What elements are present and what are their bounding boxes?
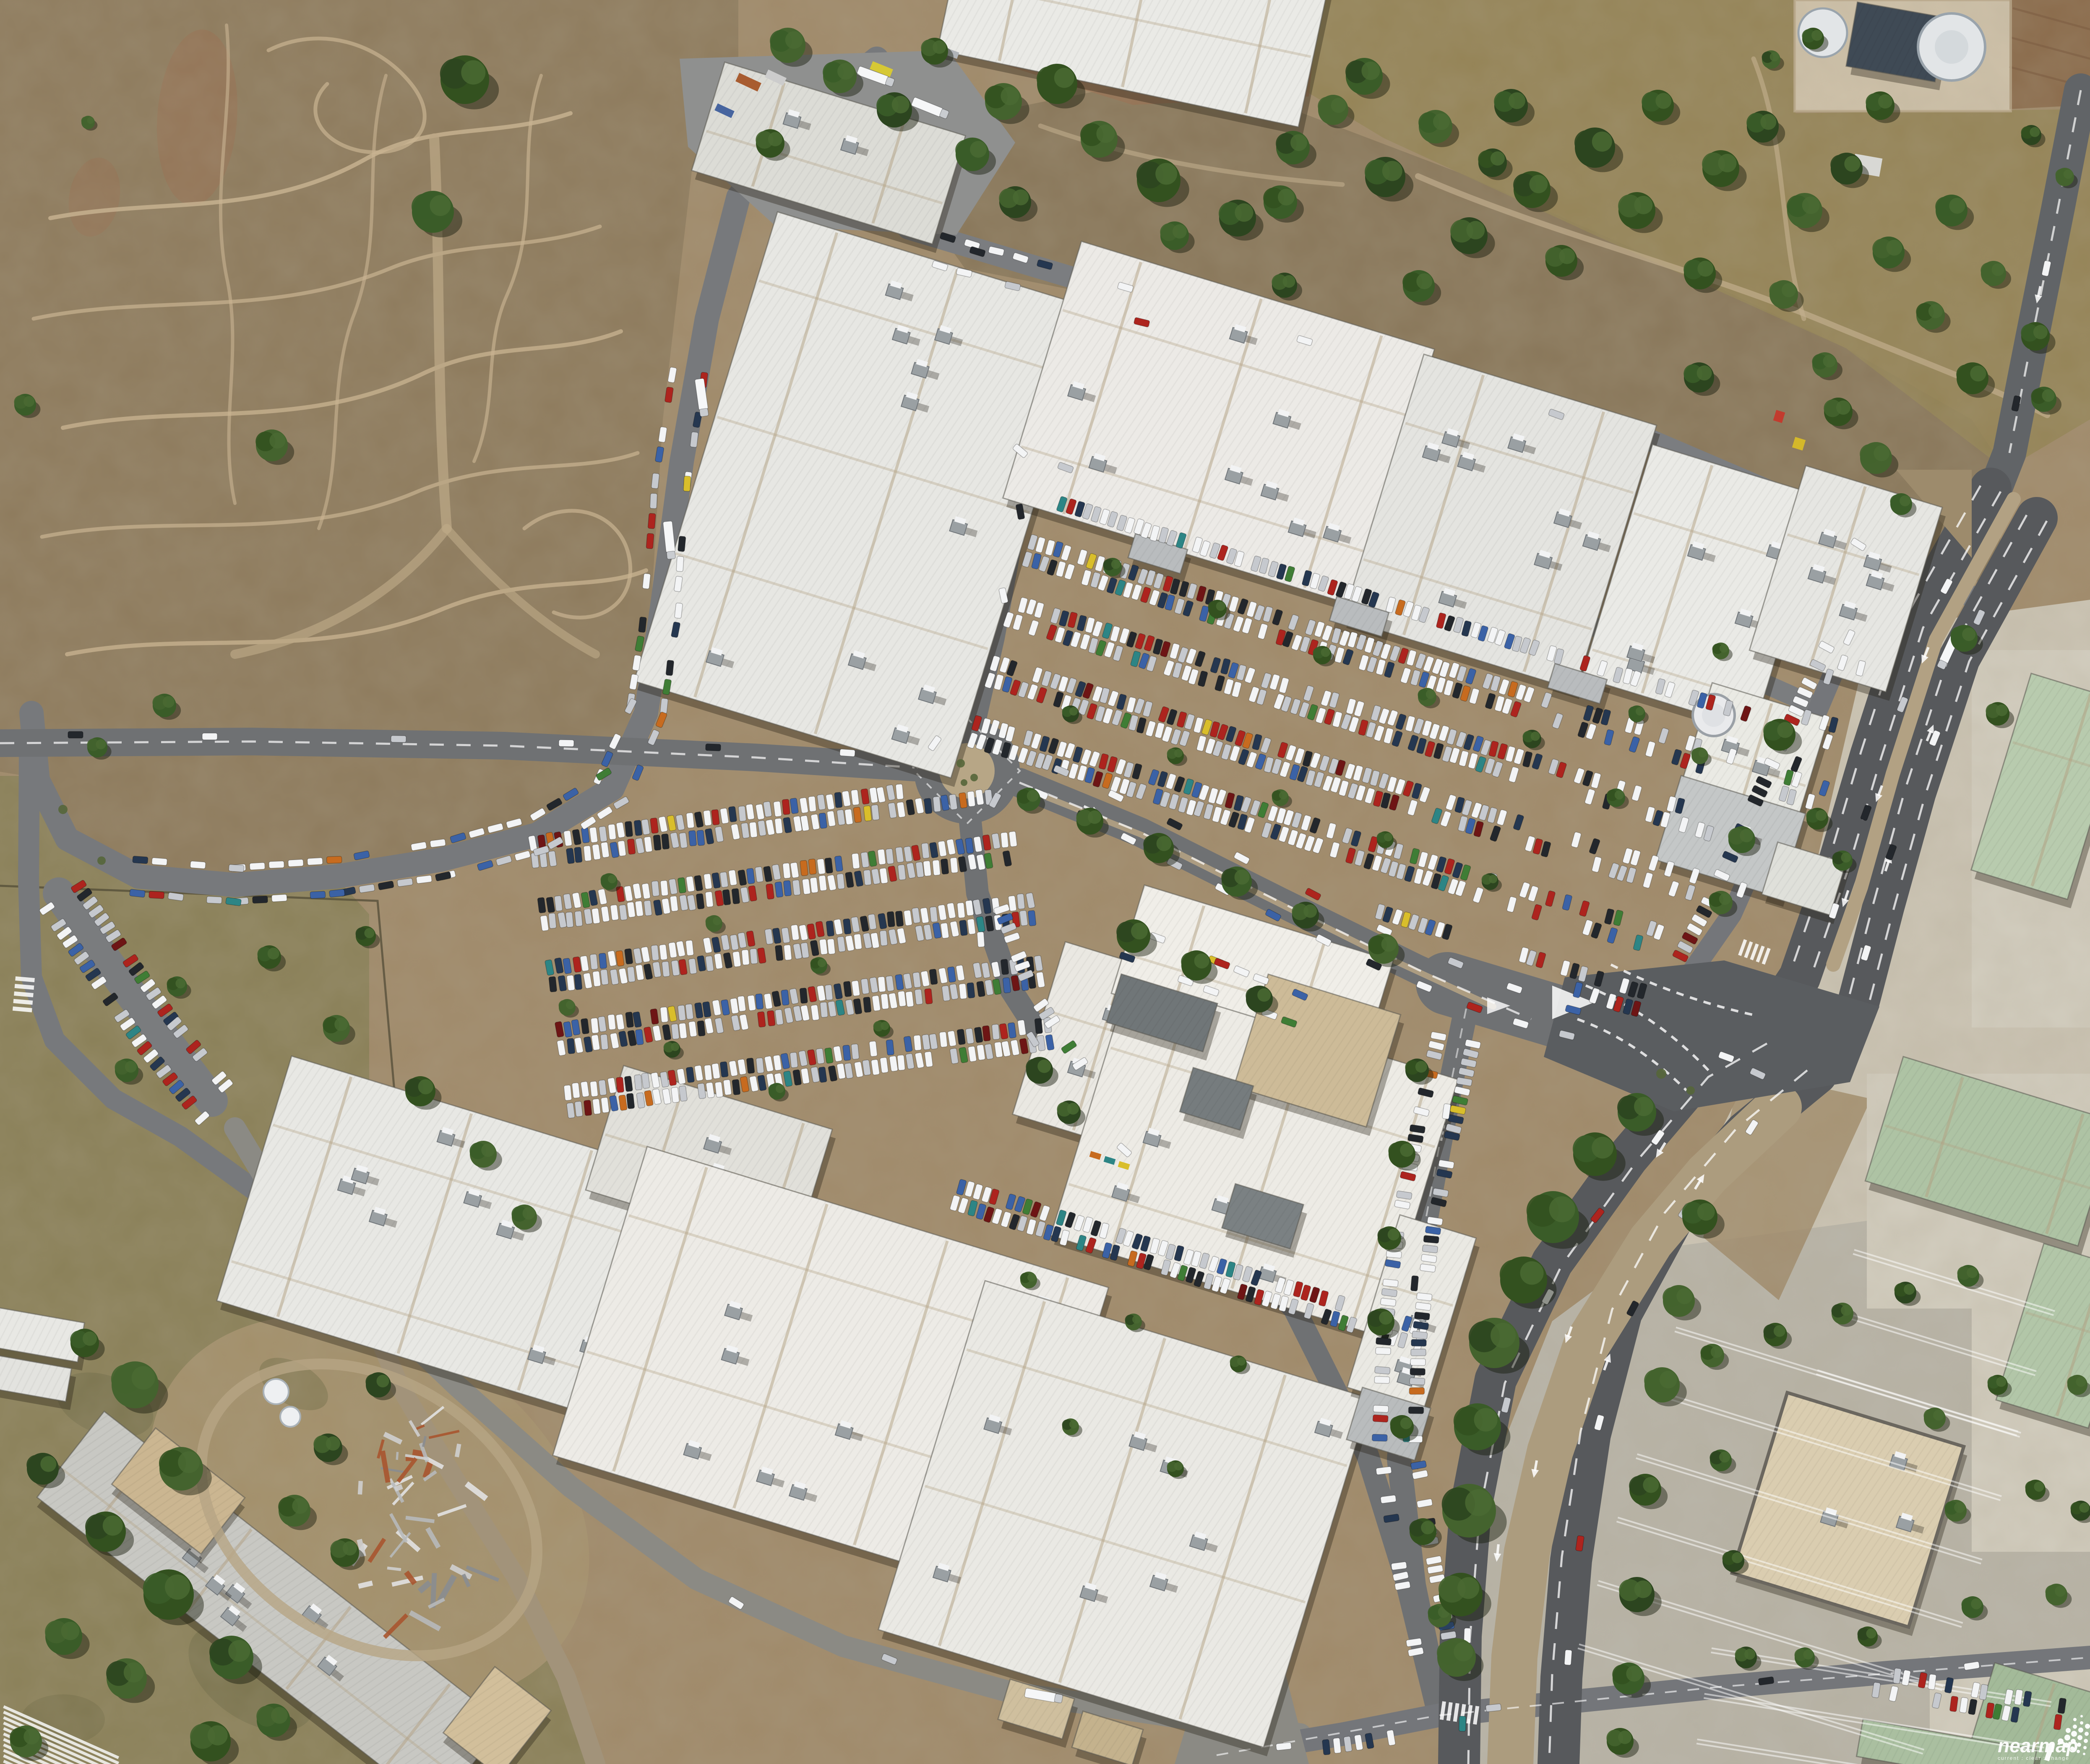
watermark-tagline-text: current : clear : change [1998,1755,2069,1761]
nearmap-aerial-photo-shopping-centre: nearmap current : clear : change [0,0,2090,1764]
